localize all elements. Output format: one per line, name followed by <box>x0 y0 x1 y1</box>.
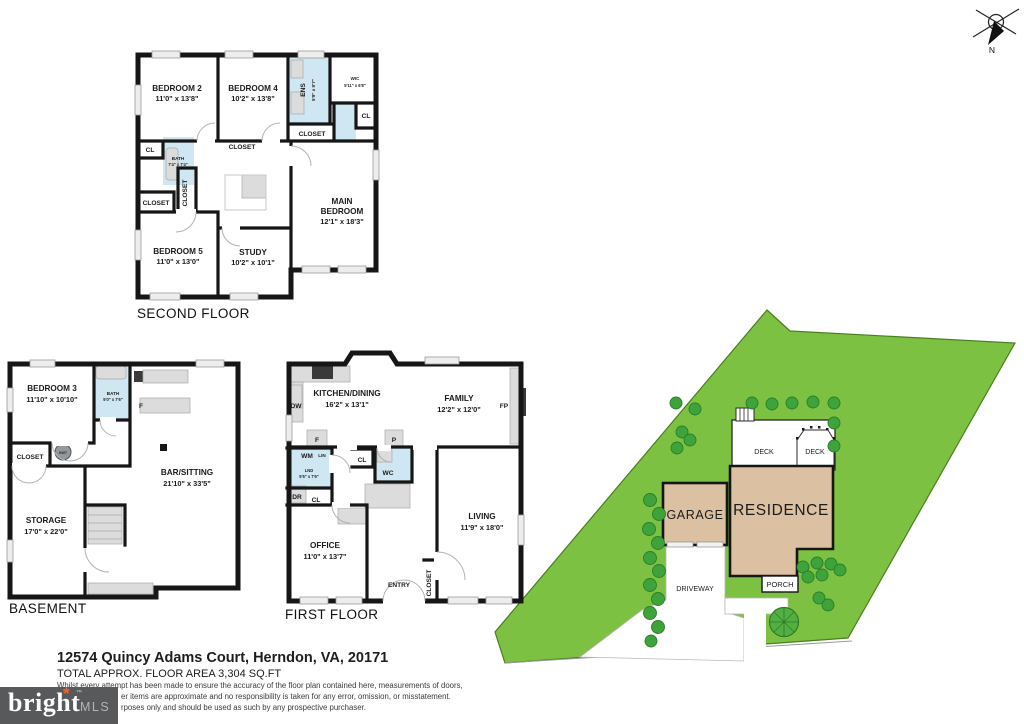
deck-stairs <box>736 408 754 421</box>
floorplan-canvas: GARAGE RESIDENCE DECK DECK PORCH DRIVEWA… <box>0 0 1024 724</box>
family-label: FAMILY <box>444 394 474 403</box>
study-label: STUDY <box>239 248 267 257</box>
fireplace-label: FP <box>500 403 509 410</box>
linen-label: LIN <box>318 453 326 458</box>
address-line: 12574 Quincy Adams Court, Herndon, VA, 2… <box>57 650 388 666</box>
big-tree <box>770 608 799 637</box>
dishwasher-label: DW <box>291 403 303 410</box>
kitchen-dims: 16'2" x 13'1" <box>325 400 369 409</box>
main-bedroom-dims: 12'1" x 18'3" <box>320 217 364 226</box>
storage-label: STORAGE <box>26 516 67 525</box>
logo-mls-text: MLS <box>80 700 110 714</box>
wic-label: WIC <box>351 76 361 81</box>
deck-left-label: DECK <box>754 449 774 456</box>
office-dims: 11'0" x 13'7" <box>304 552 347 561</box>
basement-title: BASEMENT <box>9 601 86 616</box>
compass-north-arrow <box>988 21 1004 45</box>
site-plan: GARAGE RESIDENCE DECK DECK PORCH DRIVEWA… <box>495 310 1015 663</box>
closet-hall-label: CLOSET <box>182 180 189 207</box>
living-dims: 11'9" x 18'0" <box>461 523 504 532</box>
second-floor-plan: BEDROOM 2 11'0" x 13'8" BEDROOM 4 10'2" … <box>135 51 379 321</box>
porch-label: PORCH <box>766 580 793 589</box>
compass: N <box>973 9 1019 55</box>
bedroom2-dims: 11'0" x 13'8" <box>156 94 199 103</box>
garage-label: GARAGE <box>666 508 723 522</box>
basement-bath-dims: 5'0" x 7'6" <box>103 397 123 402</box>
bedroom3-label: BEDROOM 3 <box>27 384 77 393</box>
cl-laundry-label: CL <box>312 497 321 504</box>
driveway-label: DRIVEWAY <box>676 584 714 593</box>
bath2-dims: 7'4" x 7'4" <box>168 162 188 167</box>
ens-label: ENS <box>300 83 307 97</box>
furnace-label: F <box>139 403 143 410</box>
first-floor-title: FIRST FLOOR <box>285 607 378 622</box>
main-bedroom-label-2: BEDROOM <box>321 207 364 216</box>
office-label: OFFICE <box>310 541 341 550</box>
bright-mls-logo: bright * ™ MLS <box>0 687 118 724</box>
family-dims: 12'2" x 12'0" <box>437 405 481 414</box>
storage-dims: 17'0" x 22'0" <box>24 527 68 536</box>
washer-label: WM <box>301 453 313 460</box>
bedroom4-dims: 10'2" x 13'8" <box>231 94 275 103</box>
fridge-label: F <box>315 437 319 444</box>
laundry-dims: 5'5" x 7'6" <box>299 474 319 479</box>
cl-top-left-label: CL <box>146 147 155 154</box>
entry-label: ENTRY <box>388 582 411 589</box>
bar-sitting-label: BAR/SITTING <box>161 468 213 477</box>
disclaimer-line-2: er items are approximate and no responsi… <box>121 692 451 701</box>
disclaimer-line-3: rposes only and should be used as such b… <box>121 703 366 712</box>
bedroom5-dims: 11'0" x 13'0" <box>157 257 200 266</box>
logo-trademark: ™ <box>76 690 82 696</box>
kitchen-label: KITCHEN/DINING <box>313 389 380 398</box>
hwt-label: HWT <box>59 451 68 455</box>
logo-star-icon: * <box>63 684 70 704</box>
floor-area-line: TOTAL APPROX. FLOOR AREA 3,304 SQ.FT <box>57 668 281 680</box>
closet-bed4-label: CLOSET <box>229 144 256 151</box>
first-floor-plan: KITCHEN/DINING 16'2" x 13'1" FAMILY 12'2… <box>285 353 526 622</box>
deck-right-label: DECK <box>805 449 825 456</box>
bedroom2-label: BEDROOM 2 <box>152 84 202 93</box>
shower-fill <box>334 103 356 141</box>
living-label: LIVING <box>468 512 495 521</box>
bar-sitting-dims: 21'10" x 33'5" <box>163 479 211 488</box>
cl-hall-label: CL <box>358 457 367 464</box>
main-bedroom-label-1: MAIN <box>332 197 353 206</box>
laundry-label: LND <box>305 468 313 473</box>
ens-dims: 5'9" x 9'7" <box>311 79 316 101</box>
cl-right-label: CL <box>362 113 371 120</box>
basement-closet-label: CLOSET <box>17 454 44 461</box>
study-dims: 10'2" x 10'1" <box>231 258 275 267</box>
bedroom3-dims: 11'10" x 10'10" <box>26 395 78 404</box>
walkway-2 <box>744 612 766 661</box>
residence-label: RESIDENCE <box>733 502 829 519</box>
wc-label: WC <box>383 470 394 477</box>
closet-main-label: CLOSET <box>299 131 326 138</box>
bedroom5-label: BEDROOM 5 <box>153 247 203 256</box>
basement-plan: BEDROOM 3 11'10" x 10'10" BATH 5'0" x 7'… <box>7 360 238 616</box>
basement-bath-label: BATH <box>107 391 120 396</box>
closet-bed5-label: CLOSET <box>143 200 170 207</box>
bedroom4-label: BEDROOM 4 <box>228 84 278 93</box>
wic-dims: 5'11" x 6'8" <box>344 83 366 88</box>
closet-entry-label: CLOSET <box>426 570 433 597</box>
bath2-label: BATH <box>172 156 185 161</box>
floorplan-sheet: GARAGE RESIDENCE DECK DECK PORCH DRIVEWA… <box>0 0 1024 724</box>
second-floor-title: SECOND FLOOR <box>137 306 250 321</box>
dryer-label: DR <box>292 494 302 501</box>
compass-north-label: N <box>989 45 995 55</box>
pantry-label: P <box>392 437 397 444</box>
